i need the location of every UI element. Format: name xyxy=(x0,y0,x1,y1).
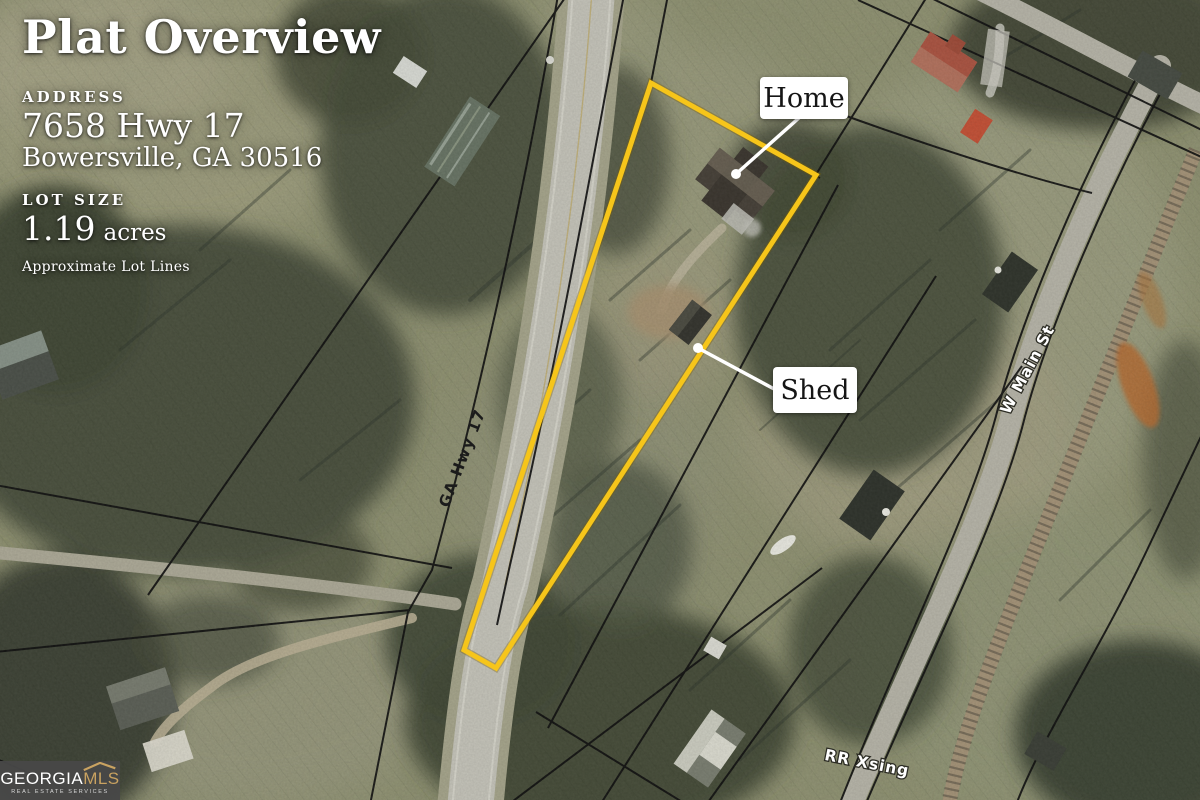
georgia-mls-logo: GEORGIAMLS REAL ESTATE SERVICES xyxy=(0,761,120,800)
home-marker-dot xyxy=(731,169,741,179)
logo-suffix-wrap: MLS xyxy=(83,770,119,787)
home-label-text: Home xyxy=(763,85,844,112)
logo-tagline: REAL ESTATE SERVICES xyxy=(11,789,109,795)
lot-size-value: 1.19 xyxy=(22,212,95,245)
logo-brand: GEORGIA xyxy=(0,770,83,787)
address-line2: Bowersville, GA 30516 xyxy=(22,144,381,174)
plat-overview-image: GA Hwy 17 W Main St RR Xsing Home Shed P… xyxy=(0,0,1200,800)
shed-label-text: Shed xyxy=(780,377,849,404)
shed-marker-dot xyxy=(693,343,703,353)
logo-suffix: MLS xyxy=(83,769,119,788)
info-panel: Plat Overview ADDRESS 7658 Hwy 17 Bowers… xyxy=(22,10,381,289)
lot-lines-disclaimer: Approximate Lot Lines xyxy=(22,259,381,275)
home-label-box: Home xyxy=(760,77,848,119)
lot-size-label: LOT SIZE xyxy=(22,191,381,209)
lot-size-row: 1.19 acres xyxy=(22,212,381,245)
address-label: ADDRESS xyxy=(22,88,381,106)
logo-wordmark: GEORGIAMLS xyxy=(0,770,119,787)
page-title: Plat Overview xyxy=(22,10,381,64)
shed-label-box: Shed xyxy=(773,367,857,413)
address-line1: 7658 Hwy 17 xyxy=(22,109,381,144)
lot-size-unit: acres xyxy=(103,222,166,245)
roof-icon xyxy=(81,762,119,771)
